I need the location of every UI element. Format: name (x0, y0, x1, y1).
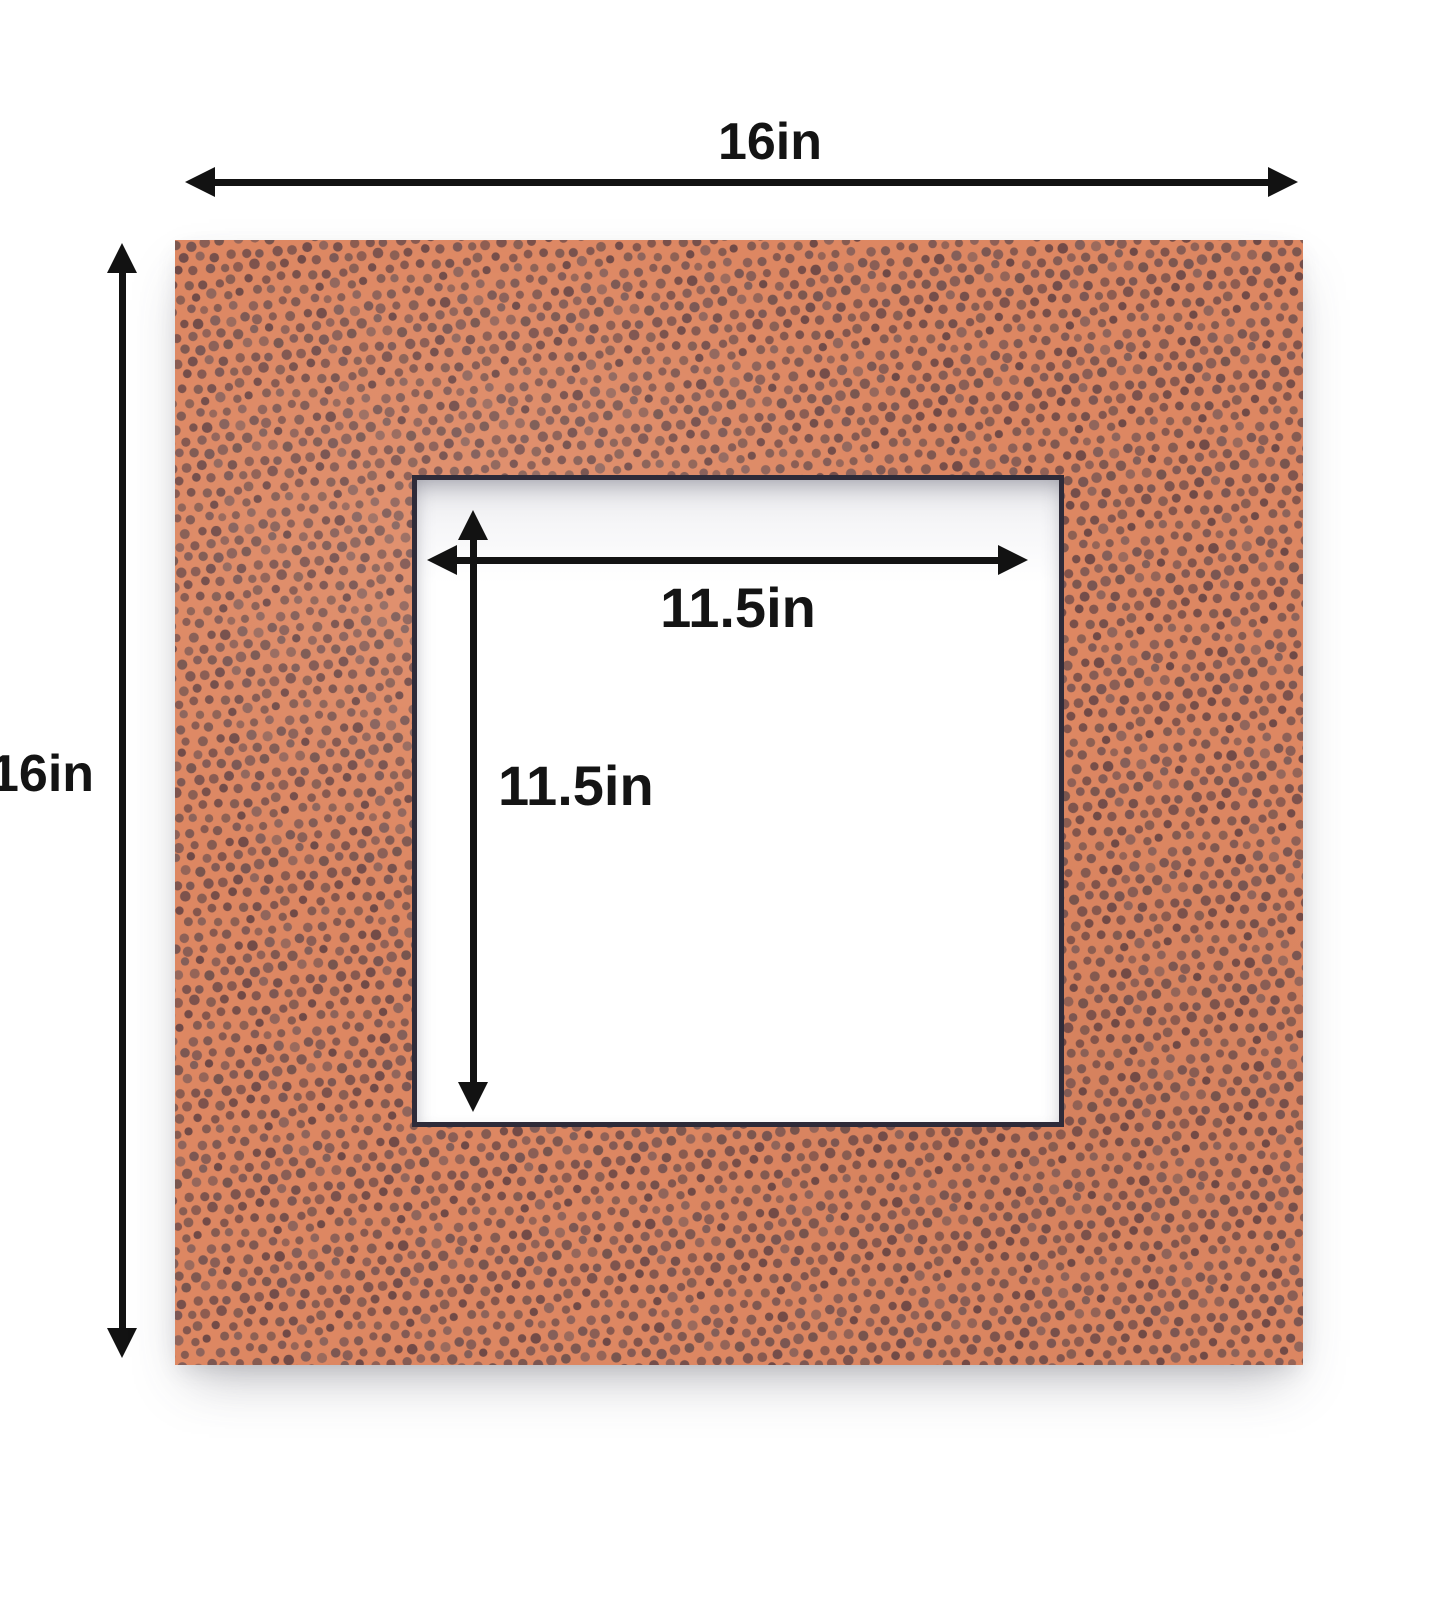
arrowhead-right-icon (998, 545, 1028, 575)
opening-height-label: 11.5in (498, 758, 654, 814)
arrowhead-right-icon (1268, 167, 1298, 197)
opening-width-arrow (427, 545, 1028, 575)
outer-height-arrow (107, 243, 137, 1358)
dimension-line (470, 540, 477, 1082)
dimension-line (457, 557, 998, 564)
outer-width-label: 16in (718, 116, 822, 168)
dimension-line (215, 179, 1268, 186)
arrowhead-left-icon (427, 545, 457, 575)
outer-width-arrow (185, 167, 1298, 197)
opening-width-label: 11.5in (660, 580, 816, 636)
arrowhead-up-icon (107, 243, 137, 273)
arrowhead-down-icon (107, 1328, 137, 1358)
opening-height-arrow (458, 510, 488, 1112)
arrowhead-down-icon (458, 1082, 488, 1112)
diagram-canvas: 16in 16in 11.5in 11.5in (0, 0, 1445, 1604)
mat-board (175, 240, 1303, 1365)
outer-height-label: 16in (0, 748, 94, 800)
arrowhead-up-icon (458, 510, 488, 540)
dimension-line (119, 273, 126, 1328)
arrowhead-left-icon (185, 167, 215, 197)
